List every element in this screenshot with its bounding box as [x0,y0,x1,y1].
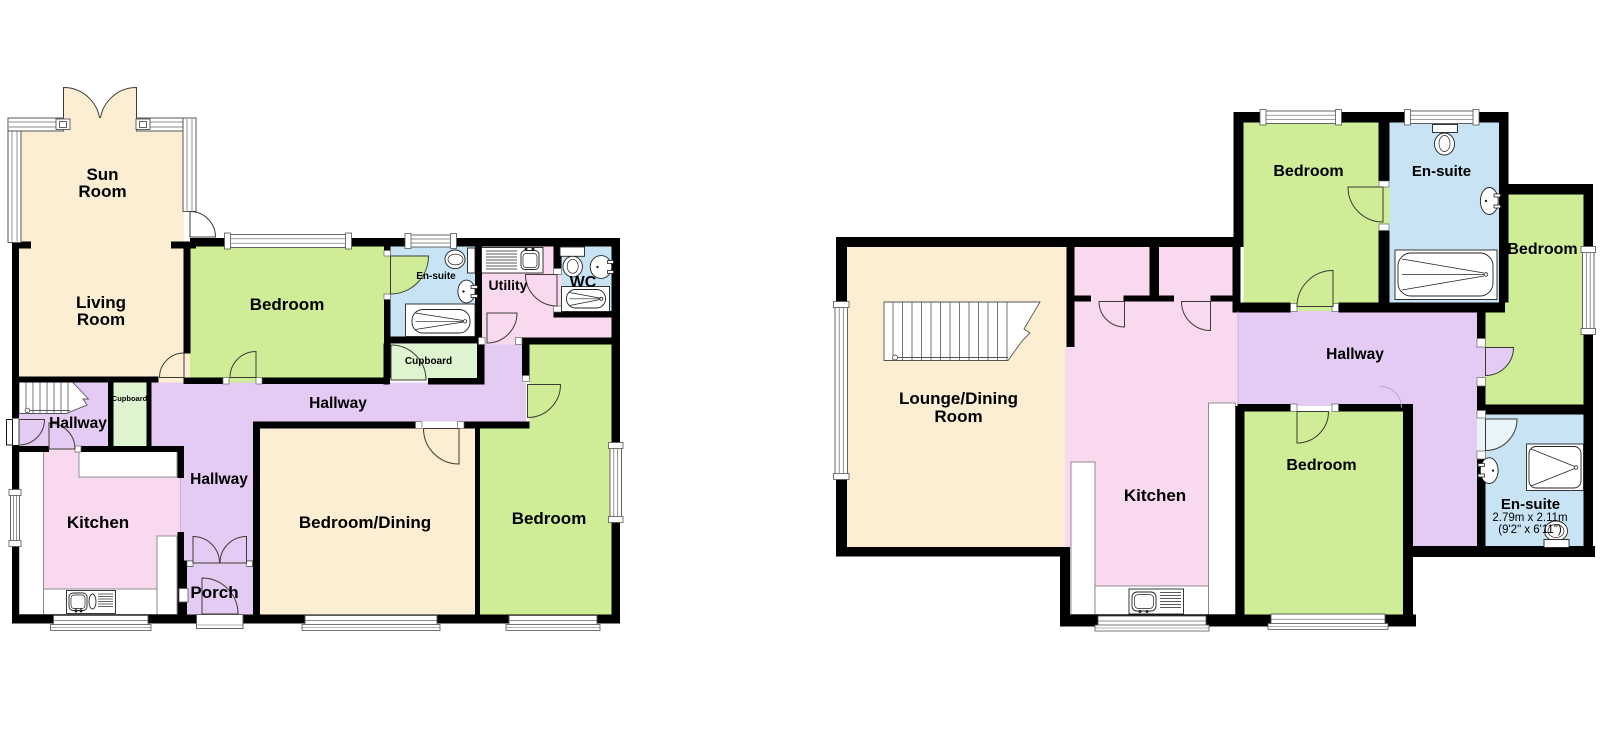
svg-text:Utility: Utility [489,277,528,293]
svg-text:Kitchen: Kitchen [1124,486,1186,505]
svg-text:Bedroom: Bedroom [1273,163,1343,180]
svg-text:Bedroom: Bedroom [250,295,325,314]
svg-text:Hallway: Hallway [1326,346,1384,363]
svg-text:Kitchen: Kitchen [67,513,129,532]
svg-text:Room: Room [78,182,126,201]
svg-text:Bedroom: Bedroom [512,509,587,528]
svg-text:Bedroom: Bedroom [1507,241,1577,258]
svg-text:Lounge/Dining: Lounge/Dining [899,389,1018,408]
svg-text:Bedroom: Bedroom [1286,457,1356,474]
svg-text:Cupboard: Cupboard [405,356,452,367]
svg-text:WC: WC [570,274,597,291]
svg-text:Cupboard: Cupboard [112,394,148,403]
svg-text:Porch: Porch [190,583,238,602]
svg-text:Bedroom/Dining: Bedroom/Dining [299,513,431,532]
svg-text:Room: Room [77,310,125,329]
svg-text:2.79m x 2.11m: 2.79m x 2.11m [1492,512,1567,524]
svg-text:En-suite: En-suite [416,271,456,282]
svg-text:Room: Room [934,407,982,426]
svg-text:Hallway: Hallway [190,471,248,488]
svg-text:En-suite: En-suite [1501,496,1560,513]
svg-text:(9'2" x 6'11"): (9'2" x 6'11") [1498,524,1562,536]
svg-text:Hallway: Hallway [49,415,107,432]
svg-text:En-suite: En-suite [1412,163,1471,180]
svg-text:Hallway: Hallway [309,395,367,412]
